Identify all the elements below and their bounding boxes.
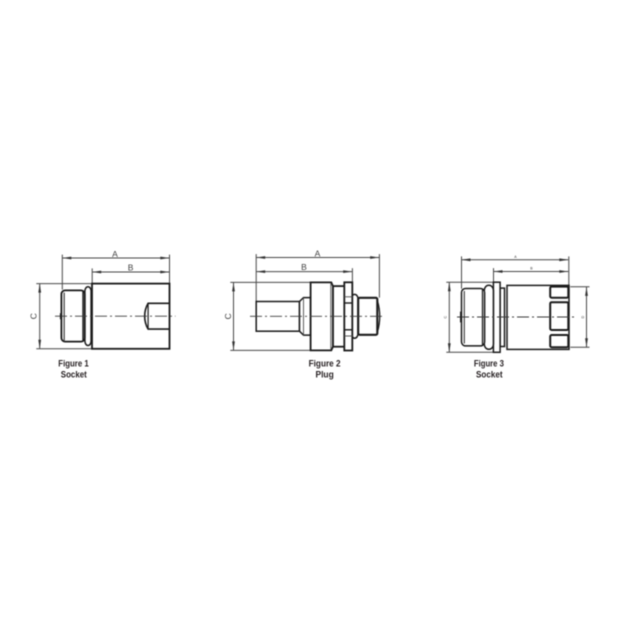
svg-text:C: C bbox=[28, 313, 38, 319]
svg-text:Figure 3: Figure 3 bbox=[474, 359, 504, 370]
svg-text:C: C bbox=[223, 313, 233, 319]
svg-text:Socket: Socket bbox=[61, 369, 88, 380]
svg-text:D: D bbox=[581, 315, 585, 318]
svg-text:B: B bbox=[530, 267, 533, 271]
svg-text:Plug: Plug bbox=[315, 369, 333, 380]
svg-text:Figure 2: Figure 2 bbox=[309, 359, 341, 370]
svg-text:A: A bbox=[514, 255, 517, 259]
svg-text:Figure 1: Figure 1 bbox=[58, 359, 89, 370]
svg-text:C: C bbox=[443, 316, 447, 319]
svg-text:Socket: Socket bbox=[476, 369, 503, 380]
svg-text:A: A bbox=[315, 248, 321, 258]
svg-text:A: A bbox=[112, 249, 118, 259]
svg-text:B: B bbox=[301, 262, 307, 272]
svg-text:B: B bbox=[128, 263, 134, 273]
